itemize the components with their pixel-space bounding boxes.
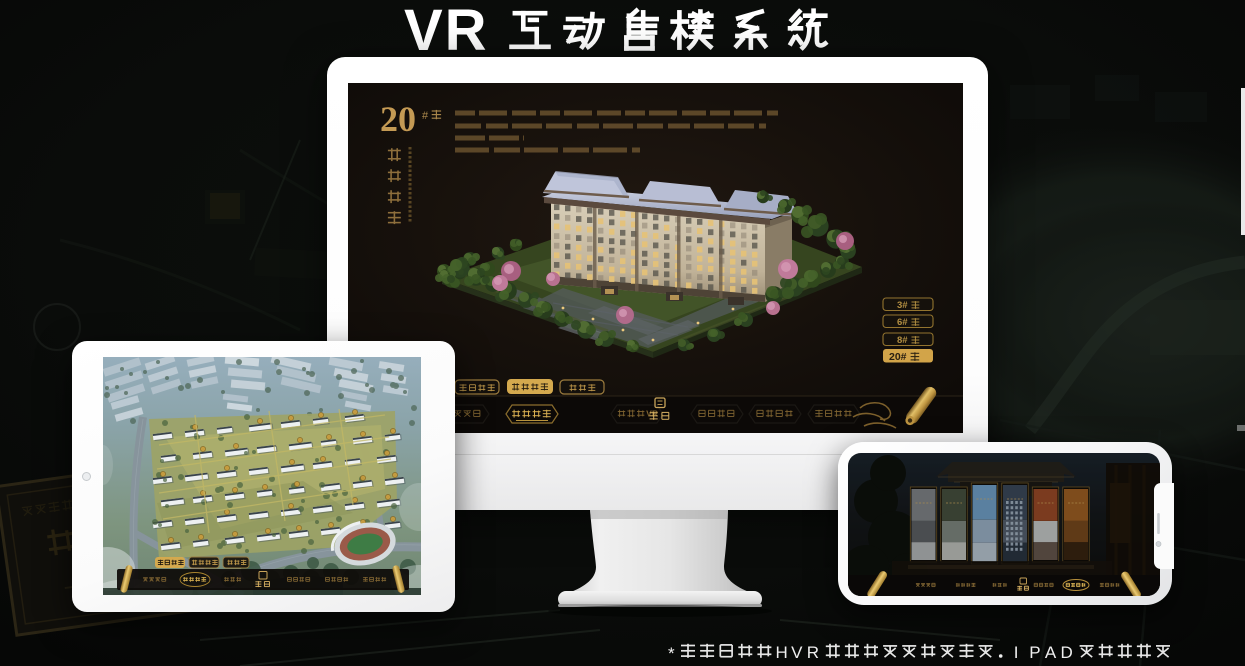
svg-text:VR: VR [404,0,489,62]
svg-text:R: R [807,643,819,662]
svg-text:P: P [1029,643,1040,662]
svg-text:6#: 6# [897,317,908,328]
svg-text:H: H [776,643,788,662]
svg-text:8#: 8# [897,335,908,346]
svg-text:20: 20 [380,99,416,139]
svg-text:#: # [422,110,429,122]
svg-text:*: * [668,644,675,663]
svg-text:D: D [1061,643,1073,662]
svg-text:V: V [791,643,803,662]
svg-text:I: I [1014,643,1019,662]
svg-text:3#: 3# [897,300,908,311]
svg-text:R: R [652,409,659,419]
svg-text:A: A [1045,643,1057,662]
svg-text:20#: 20# [889,351,907,363]
